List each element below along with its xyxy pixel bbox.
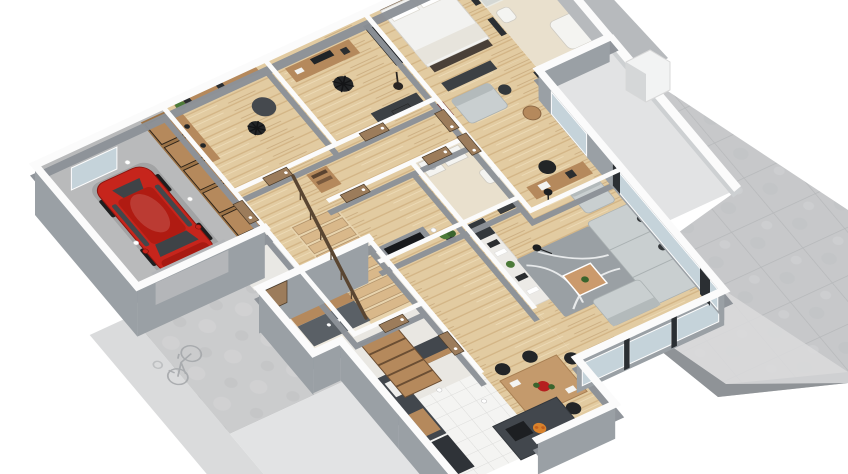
floorplan-page [0,0,848,474]
curtain [671,316,677,349]
curtain [624,338,630,371]
floorplan-render-canvas [0,0,848,474]
